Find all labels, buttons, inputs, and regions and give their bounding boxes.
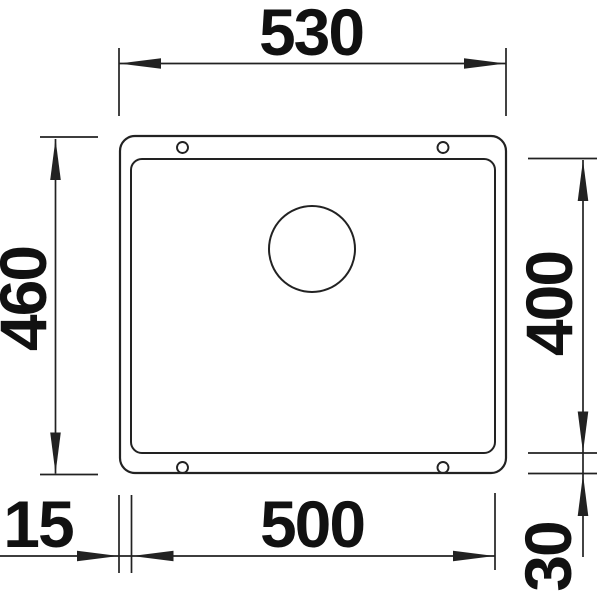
arrow-400-down bbox=[578, 412, 589, 453]
arrow-530-right bbox=[464, 58, 506, 69]
dim-label-rim-bottom: 30 bbox=[515, 522, 581, 591]
mounting-hole-bottom-left bbox=[177, 462, 188, 473]
arrow-15-right bbox=[77, 551, 119, 562]
arrow-460-up bbox=[50, 139, 61, 180]
sink-bowl-outline bbox=[131, 159, 495, 453]
arrow-400-up bbox=[578, 160, 589, 201]
arrow-30-up bbox=[578, 475, 589, 517]
mounting-hole-bottom-right bbox=[438, 462, 449, 473]
arrow-500-left bbox=[132, 551, 174, 562]
mounting-hole-top-right bbox=[438, 142, 449, 153]
dim-label-bowl-height: 400 bbox=[516, 252, 582, 356]
mounting-hole-top-left bbox=[177, 142, 188, 153]
arrow-500-right bbox=[453, 551, 495, 562]
dim-label-outer-height: 460 bbox=[0, 247, 56, 351]
drain-hole-circle bbox=[269, 206, 355, 292]
arrow-530-left bbox=[120, 58, 162, 69]
dim-label-rim-left: 15 bbox=[3, 491, 72, 557]
technical-drawing-canvas: 530 460 400 500 15 30 bbox=[0, 0, 600, 600]
dim-label-bowl-width: 500 bbox=[260, 491, 364, 557]
dim-label-outer-width: 530 bbox=[259, 0, 363, 65]
sink-outer-rim-outline bbox=[120, 136, 506, 473]
arrow-460-down bbox=[50, 433, 61, 474]
